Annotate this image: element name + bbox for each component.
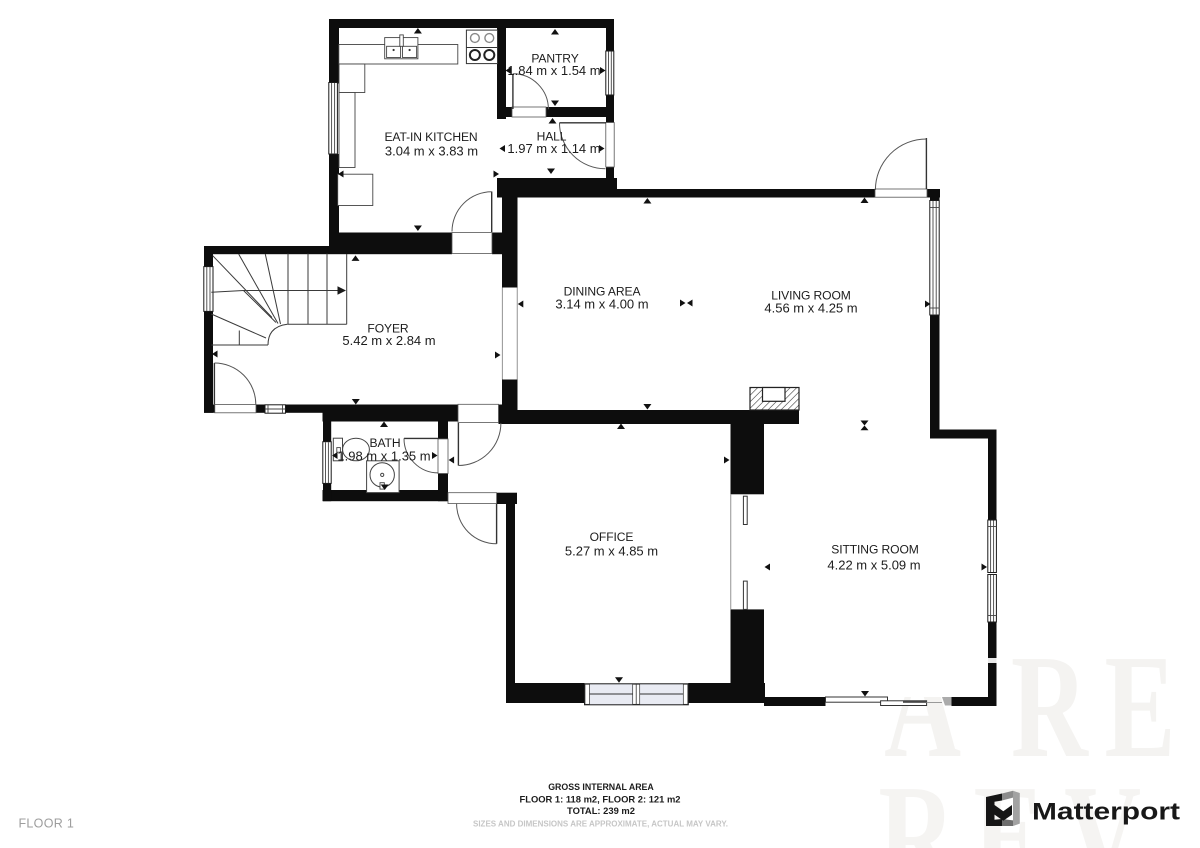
svg-text:EAT-IN KITCHEN: EAT-IN KITCHEN xyxy=(384,130,477,144)
svg-text:TOTAL: 239 m2: TOTAL: 239 m2 xyxy=(567,805,635,816)
svg-text:FLOOR 1: 118 m2, FLOOR 2: 121: FLOOR 1: 118 m2, FLOOR 2: 121 m2 xyxy=(520,793,681,804)
svg-text:SITTING ROOM: SITTING ROOM xyxy=(831,543,919,557)
svg-text:Matterport: Matterport xyxy=(1032,799,1180,826)
svg-text:1.97 m x 1.14 m: 1.97 m x 1.14 m xyxy=(507,141,600,156)
svg-text:4.22 m x 5.09 m: 4.22 m x 5.09 m xyxy=(827,558,920,573)
svg-text:1.98 m x 1.35 m: 1.98 m x 1.35 m xyxy=(337,449,430,464)
svg-text:GROSS INTERNAL AREA: GROSS INTERNAL AREA xyxy=(548,782,654,792)
svg-text:1.84 m x 1.54 m: 1.84 m x 1.54 m xyxy=(507,63,600,78)
svg-text:OFFICE: OFFICE xyxy=(590,530,634,544)
svg-text:FLOOR 1: FLOOR 1 xyxy=(19,817,75,831)
svg-text:3.04 m x 3.83 m: 3.04 m x 3.83 m xyxy=(385,144,478,159)
svg-text:5.42 m x 2.84 m: 5.42 m x 2.84 m xyxy=(342,333,435,348)
svg-text:5.27 m x 4.85 m: 5.27 m x 4.85 m xyxy=(565,544,658,559)
svg-text:3.14 m x 4.00 m: 3.14 m x 4.00 m xyxy=(555,297,648,312)
svg-text:4.56 m x 4.25 m: 4.56 m x 4.25 m xyxy=(764,301,857,316)
svg-text:SIZES AND DIMENSIONS ARE APPRO: SIZES AND DIMENSIONS ARE APPROXIMATE, AC… xyxy=(473,819,728,828)
svg-text:R: R xyxy=(878,754,957,848)
